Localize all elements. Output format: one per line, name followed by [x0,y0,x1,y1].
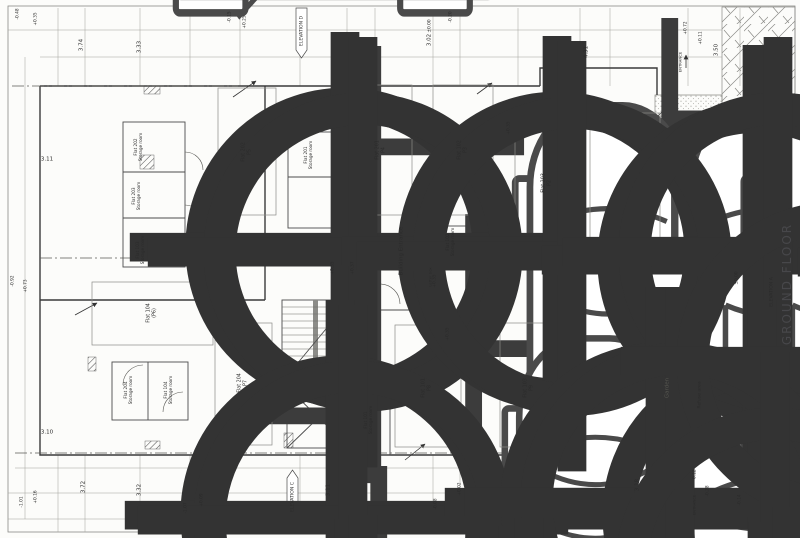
car-spot-label: P4 [381,140,387,160]
level-marker-label: -1.01 [19,496,24,507]
storage-room-label: Flat 204Storage room [123,376,133,405]
dimension-label: 3.72 [81,481,88,493]
elevation-d-label: ELEVATION D [299,16,305,46]
level-marker-label: -0.92 [10,275,15,286]
car-spot-label: P5 [247,142,253,162]
level-marker-label: -0.28 [705,485,710,496]
storage-room-type: Storage room [136,182,141,211]
level-marker-label: +0.25 [242,15,247,28]
storage-room-type: Storage room [140,236,145,265]
car [110,0,559,18]
car-flat-label: Flat 103 [523,378,529,398]
dimension-label: 3.33 [137,41,144,53]
storage-room-label: Flat 202Storage room [133,133,143,162]
car-flat-label: Flat 102 [457,140,463,160]
car-flat-label: Flat 202 [241,142,247,162]
dimension-label: 3.50 [714,44,721,56]
storage-room-type: Storage room [168,376,173,405]
ground-floor-title: GROUND FLOOR [780,223,794,345]
elevation-c-label: ELEVATION C [290,482,296,512]
car-label: Flat 203P2 [541,173,553,193]
storage-room-label: Flat 104Storage room [163,376,173,405]
level-marker-label: -0.20 [448,11,453,22]
level-marker-label: +0.11 [698,31,703,44]
level-marker-label: +0.35 [445,327,450,340]
level-marker-label: -0.48 [15,8,20,19]
car-label: Flat 104(P6) [146,303,158,323]
storage-room-label: Flat 103Storage room [135,236,145,265]
car-label: Flat 201P4 [375,140,387,160]
car-spot-label: (P6) [152,303,158,323]
level-marker-label: -0.15 [227,11,232,22]
car-label: Flat 202P5 [241,142,253,162]
car-spot-label: P8 [427,378,433,398]
dimension-label: 3.18 [635,479,642,491]
storage-room-type: Storage room [308,141,313,170]
entrance-top-label: ENTRANCE [679,52,684,73]
level-marker-label: +0.35 [330,261,335,274]
floor-plan: GROUND FLOOR ELEVATION A ELEVATION D ELE… [0,0,800,538]
car-flat-label: Flat 204 [237,373,243,393]
car-flat-label: Flat 203 [541,173,547,193]
storage-room-type: Storage room [138,133,143,162]
dimension-label: 3.32 [137,484,144,496]
level-marker-label: +0.72 [683,21,688,34]
level-marker-label: -1.07 [183,502,188,513]
dimension-label: 4.31 [584,46,591,58]
level-marker-label: ±0.00 [427,19,432,32]
level-marker-label: +0.37 [350,261,355,274]
entrance-bottom-label: ENTRANCE [693,495,698,516]
car-label: Flat 204P7 [237,373,249,393]
garden-label: Garden [665,378,672,398]
car-spot-label: P3 [463,140,469,160]
storage-room-type: Storage room [450,228,455,257]
car-flat-label: Flat 101 [421,378,427,398]
level-marker-label: -0.14 [737,494,742,505]
building-entrance-label: Building Entrance [399,227,406,276]
car-flat-label: Flat 201 [375,140,381,160]
dimension-label: 3.02 [427,34,434,46]
dimension-label: 3.74 [79,39,86,51]
car-label: Flat 101P8 [421,378,433,398]
dimension-label: 3.11 [41,157,53,164]
level-marker-label: -0.08 [433,498,438,509]
level-marker-label: +0.73 [23,279,28,292]
car-spot-label: P7 [243,373,249,393]
level-marker-label: -0.12 [692,469,697,480]
car-spot-label: P9 [529,378,535,398]
dimension-label: 3.11 [326,484,333,496]
storage-room-type: Storage room [128,376,133,405]
refuse-area-label: Refuse area [697,381,703,408]
storage-room-type: Storage room [368,406,373,435]
storage-room-label: Flat 101Storage room [363,406,373,435]
level-marker-label: ±0.00 [734,271,739,284]
dimension-label: 3.10 [41,430,53,437]
car-label: Flat 103P9 [523,378,535,398]
level-marker-label: +0.09 [199,493,204,506]
level-marker-label: +0.16 [33,490,38,503]
storage-room-label: Flat 102Storage room [445,228,455,257]
elevation-a-label: ELEVATION A [769,277,775,307]
level-marker-label: +0.35 [506,121,511,134]
car-label: Flat 102P3 [457,140,469,160]
level-marker-label: +0.35 [432,274,437,287]
level-marker-label: +0.35 [33,12,38,25]
car-flat-label: Flat 104 [146,303,152,323]
level-marker-label: +0.02 [457,482,462,495]
car-spot-label: P2 [547,173,553,193]
storage-room-label: Flat 201Storage room [303,141,313,170]
storage-room-label: Flat 203Storage room [131,182,141,211]
